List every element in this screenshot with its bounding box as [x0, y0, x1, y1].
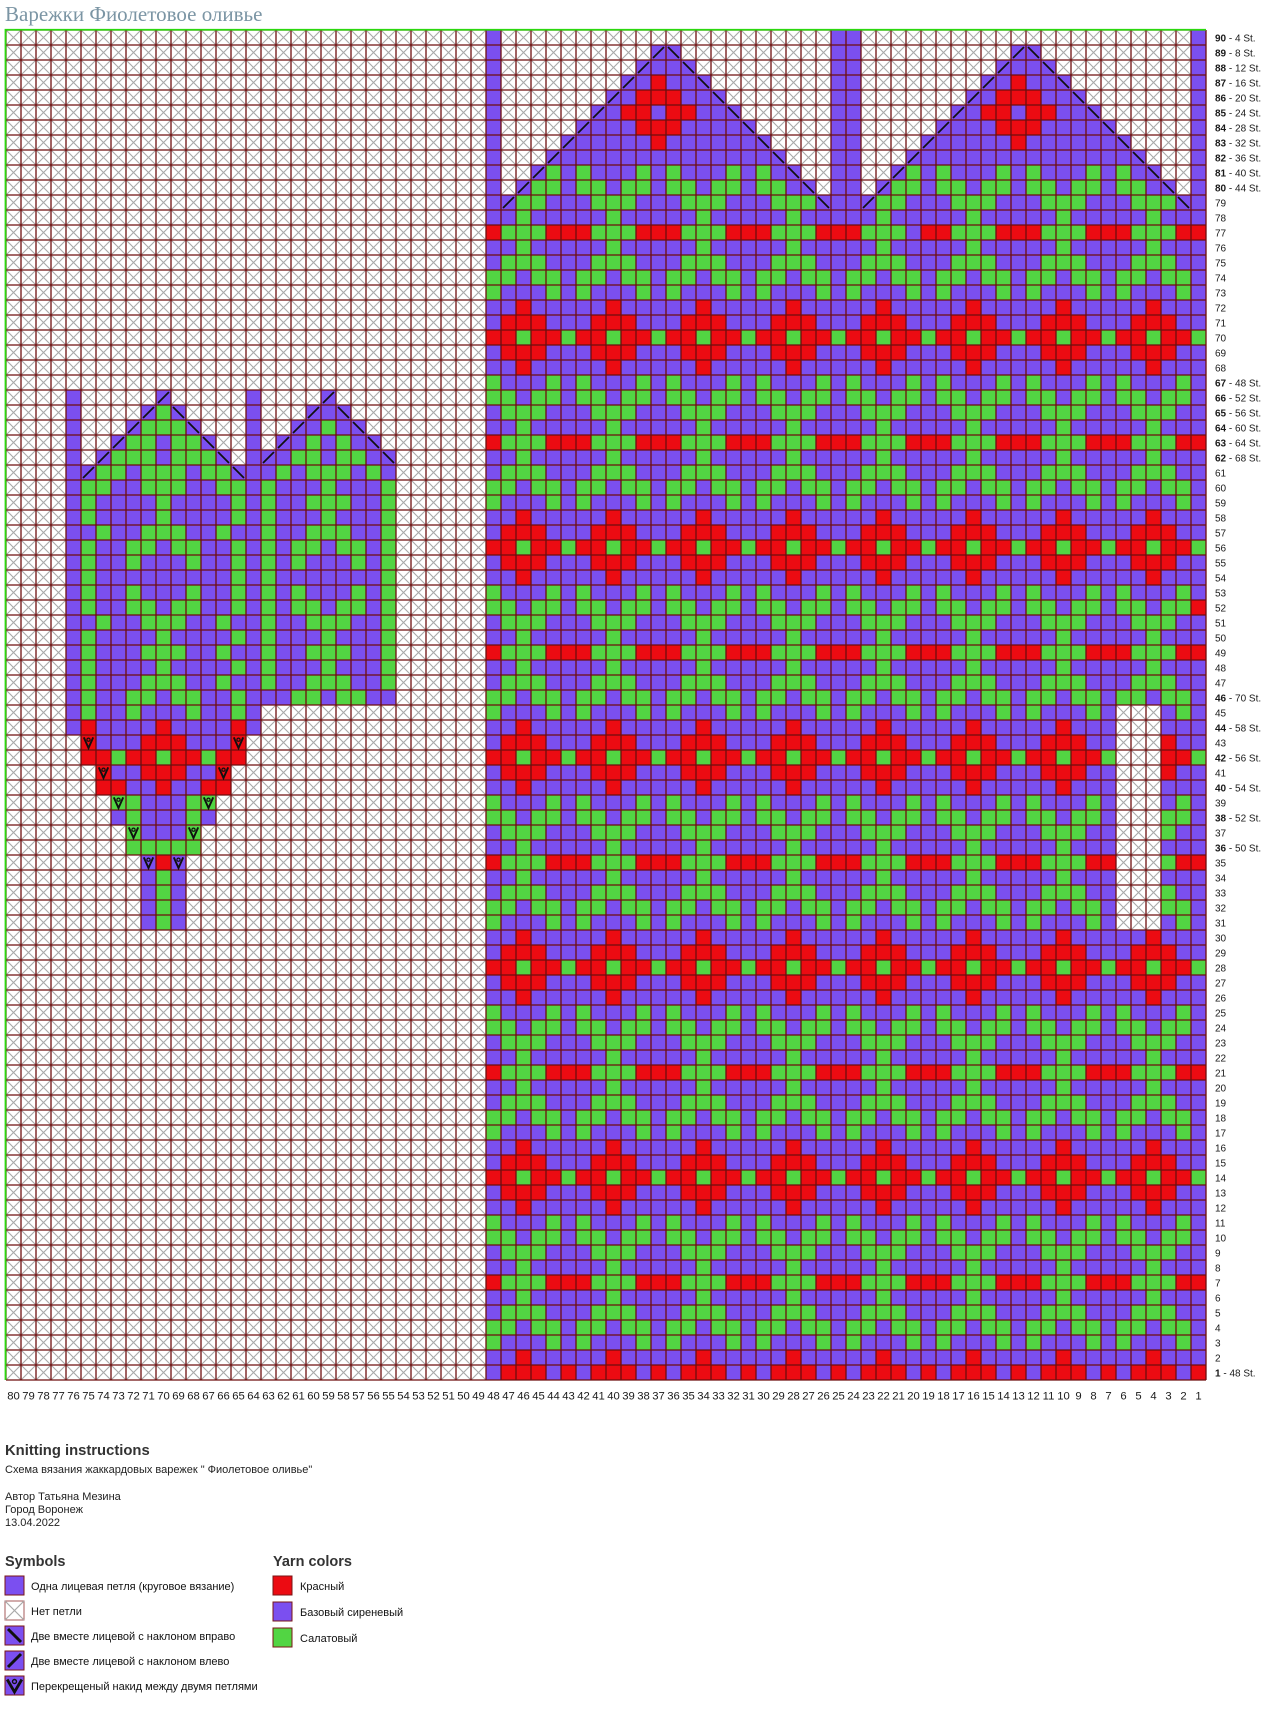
- svg-text:82 - 36 St.: 82 - 36 St.: [1215, 154, 1261, 165]
- svg-text:31: 31: [1215, 919, 1227, 930]
- svg-text:16: 16: [967, 1391, 980, 1403]
- svg-text:34: 34: [1215, 874, 1227, 885]
- svg-text:71: 71: [142, 1391, 155, 1403]
- svg-text:86 - 20 St.: 86 - 20 St.: [1215, 94, 1261, 105]
- svg-text:Базовый сиреневый: Базовый сиреневый: [300, 1607, 403, 1619]
- svg-text:70: 70: [1215, 334, 1227, 345]
- svg-text:53: 53: [412, 1391, 425, 1403]
- svg-text:1 - 48 St.: 1 - 48 St.: [1215, 1369, 1256, 1380]
- svg-text:56: 56: [367, 1391, 380, 1403]
- svg-text:19: 19: [1215, 1099, 1227, 1110]
- svg-text:14: 14: [1215, 1174, 1227, 1185]
- svg-text:Knitting instructions: Knitting instructions: [5, 1443, 150, 1459]
- svg-text:5: 5: [1215, 1309, 1221, 1320]
- svg-text:48: 48: [1215, 664, 1227, 675]
- svg-text:68: 68: [187, 1391, 200, 1403]
- svg-text:13: 13: [1012, 1391, 1025, 1403]
- svg-text:68: 68: [1215, 364, 1227, 375]
- svg-text:64 - 60 St.: 64 - 60 St.: [1215, 424, 1261, 435]
- svg-text:1: 1: [1195, 1391, 1201, 1403]
- svg-text:63: 63: [262, 1391, 275, 1403]
- svg-text:41: 41: [1215, 769, 1227, 780]
- svg-text:29: 29: [772, 1391, 785, 1403]
- svg-text:85 - 24 St.: 85 - 24 St.: [1215, 109, 1261, 120]
- svg-text:46 - 70 St.: 46 - 70 St.: [1215, 694, 1261, 705]
- svg-text:53: 53: [1215, 589, 1227, 600]
- svg-text:Нет петли: Нет петли: [31, 1606, 82, 1618]
- svg-text:42 - 56 St.: 42 - 56 St.: [1215, 754, 1261, 765]
- svg-text:Одна лицевая петля (круговое в: Одна лицевая петля (круговое вязание): [31, 1581, 234, 1593]
- svg-text:30: 30: [1215, 934, 1227, 945]
- svg-text:29: 29: [1215, 949, 1227, 960]
- svg-text:78: 78: [1215, 214, 1227, 225]
- svg-text:31: 31: [742, 1391, 755, 1403]
- svg-text:38: 38: [637, 1391, 650, 1403]
- svg-text:84 - 28 St.: 84 - 28 St.: [1215, 124, 1261, 135]
- svg-text:Автор Татьяна Мезина: Автор Татьяна Мезина: [5, 1491, 122, 1503]
- svg-text:60: 60: [307, 1391, 320, 1403]
- svg-text:32: 32: [727, 1391, 740, 1403]
- svg-text:Варежки Фиолетовое оливье: Варежки Фиолетовое оливье: [5, 2, 262, 26]
- svg-text:4: 4: [1150, 1391, 1156, 1403]
- svg-text:26: 26: [1215, 994, 1227, 1005]
- svg-text:75: 75: [82, 1391, 95, 1403]
- svg-text:11: 11: [1043, 1391, 1055, 1403]
- svg-text:23: 23: [862, 1391, 875, 1403]
- svg-text:44: 44: [547, 1391, 560, 1403]
- svg-text:76: 76: [67, 1391, 80, 1403]
- svg-text:41: 41: [592, 1391, 605, 1403]
- svg-text:42: 42: [577, 1391, 590, 1403]
- svg-text:27: 27: [802, 1391, 815, 1403]
- svg-text:73: 73: [112, 1391, 125, 1403]
- svg-text:51: 51: [442, 1391, 455, 1403]
- svg-text:28: 28: [787, 1391, 800, 1403]
- svg-text:5: 5: [1135, 1391, 1141, 1403]
- svg-text:33: 33: [712, 1391, 725, 1403]
- svg-text:10: 10: [1057, 1391, 1070, 1403]
- svg-text:72: 72: [127, 1391, 140, 1403]
- svg-text:40 - 54 St.: 40 - 54 St.: [1215, 784, 1261, 795]
- svg-text:Салатовый: Салатовый: [300, 1633, 357, 1645]
- svg-text:38 - 52 St.: 38 - 52 St.: [1215, 814, 1261, 825]
- svg-text:39: 39: [1215, 799, 1227, 810]
- svg-text:17: 17: [952, 1391, 965, 1403]
- svg-text:16: 16: [1215, 1144, 1227, 1155]
- svg-text:34: 34: [697, 1391, 710, 1403]
- svg-text:64: 64: [247, 1391, 260, 1403]
- svg-text:47: 47: [1215, 679, 1227, 690]
- svg-text:6: 6: [1215, 1294, 1221, 1305]
- svg-text:30: 30: [757, 1391, 770, 1403]
- svg-text:72: 72: [1215, 304, 1227, 315]
- svg-text:58: 58: [337, 1391, 350, 1403]
- svg-text:7: 7: [1105, 1391, 1111, 1403]
- svg-text:70: 70: [157, 1391, 170, 1403]
- svg-text:62: 62: [277, 1391, 290, 1403]
- svg-text:37: 37: [652, 1391, 665, 1403]
- svg-text:44 - 58 St.: 44 - 58 St.: [1215, 724, 1261, 735]
- svg-text:47: 47: [502, 1391, 515, 1403]
- svg-text:52: 52: [427, 1391, 440, 1403]
- svg-text:19: 19: [922, 1391, 935, 1403]
- svg-text:15: 15: [982, 1391, 995, 1403]
- svg-text:87 - 16 St.: 87 - 16 St.: [1215, 79, 1261, 90]
- svg-text:25: 25: [1215, 1009, 1227, 1020]
- svg-text:14: 14: [997, 1391, 1010, 1403]
- svg-text:18: 18: [937, 1391, 950, 1403]
- svg-text:12: 12: [1027, 1391, 1040, 1403]
- svg-text:69: 69: [172, 1391, 185, 1403]
- svg-text:23: 23: [1215, 1039, 1227, 1050]
- svg-text:54: 54: [1215, 574, 1227, 585]
- svg-text:21: 21: [892, 1391, 905, 1403]
- svg-text:74: 74: [1215, 274, 1227, 285]
- svg-text:63 - 64 St.: 63 - 64 St.: [1215, 439, 1261, 450]
- svg-text:49: 49: [472, 1391, 485, 1403]
- svg-text:10: 10: [1215, 1234, 1227, 1245]
- svg-text:75: 75: [1215, 259, 1227, 270]
- svg-text:78: 78: [37, 1391, 50, 1403]
- svg-text:79: 79: [22, 1391, 35, 1403]
- svg-text:59: 59: [322, 1391, 335, 1403]
- svg-text:21: 21: [1215, 1069, 1227, 1080]
- svg-text:27: 27: [1215, 979, 1227, 990]
- svg-text:50: 50: [457, 1391, 470, 1403]
- svg-text:57: 57: [1215, 529, 1227, 540]
- svg-text:15: 15: [1215, 1159, 1227, 1170]
- svg-text:39: 39: [622, 1391, 635, 1403]
- svg-text:59: 59: [1215, 499, 1227, 510]
- svg-text:79: 79: [1215, 199, 1227, 210]
- svg-text:2: 2: [1180, 1391, 1186, 1403]
- svg-text:77: 77: [1215, 229, 1227, 240]
- svg-text:65: 65: [232, 1391, 245, 1403]
- svg-text:62 - 68 St.: 62 - 68 St.: [1215, 454, 1261, 465]
- svg-text:51: 51: [1215, 619, 1227, 630]
- svg-text:81 - 40 St.: 81 - 40 St.: [1215, 169, 1261, 180]
- svg-text:74: 74: [97, 1391, 110, 1403]
- svg-text:90 - 4 St.: 90 - 4 St.: [1215, 34, 1256, 45]
- svg-text:66 - 52 St.: 66 - 52 St.: [1215, 394, 1261, 405]
- svg-text:55: 55: [1215, 559, 1227, 570]
- svg-text:49: 49: [1215, 649, 1227, 660]
- svg-text:36 - 50 St.: 36 - 50 St.: [1215, 844, 1261, 855]
- svg-text:6: 6: [1120, 1391, 1126, 1403]
- svg-text:20: 20: [1215, 1084, 1227, 1095]
- svg-text:45: 45: [1215, 709, 1227, 720]
- svg-text:48: 48: [487, 1391, 500, 1403]
- svg-text:18: 18: [1215, 1114, 1227, 1125]
- svg-text:60: 60: [1215, 484, 1227, 495]
- svg-text:71: 71: [1215, 319, 1227, 330]
- svg-text:43: 43: [1215, 739, 1227, 750]
- svg-text:80 - 44 St.: 80 - 44 St.: [1215, 184, 1261, 195]
- svg-text:2: 2: [1215, 1354, 1221, 1365]
- svg-text:56: 56: [1215, 544, 1227, 555]
- svg-text:35: 35: [682, 1391, 695, 1403]
- svg-text:69: 69: [1215, 349, 1227, 360]
- svg-text:3: 3: [1165, 1391, 1171, 1403]
- svg-text:55: 55: [382, 1391, 395, 1403]
- svg-text:11: 11: [1215, 1219, 1226, 1230]
- svg-text:Схема вязания жаккардовых варе: Схема вязания жаккардовых варежек " Фиол…: [5, 1464, 312, 1476]
- svg-text:57: 57: [352, 1391, 365, 1403]
- svg-text:13.04.2022: 13.04.2022: [5, 1517, 60, 1529]
- svg-text:3: 3: [1215, 1339, 1221, 1350]
- svg-text:76: 76: [1215, 244, 1227, 255]
- svg-text:7: 7: [1215, 1279, 1221, 1290]
- svg-text:Красный: Красный: [300, 1581, 344, 1593]
- svg-text:Symbols: Symbols: [5, 1554, 65, 1570]
- svg-text:Город Воронеж: Город Воронеж: [5, 1504, 84, 1516]
- svg-text:8: 8: [1215, 1264, 1221, 1275]
- svg-text:33: 33: [1215, 889, 1227, 900]
- svg-text:65 - 56 St.: 65 - 56 St.: [1215, 409, 1261, 420]
- svg-text:9: 9: [1075, 1391, 1081, 1403]
- svg-text:67: 67: [202, 1391, 215, 1403]
- svg-text:Две вместе лицевой с наклоном: Две вместе лицевой с наклоном влево: [31, 1656, 229, 1668]
- svg-text:73: 73: [1215, 289, 1227, 300]
- svg-text:45: 45: [532, 1391, 545, 1403]
- svg-text:Перекрещеный накид между двумя: Перекрещеный накид между двумя петлями: [31, 1681, 258, 1693]
- svg-text:77: 77: [52, 1391, 65, 1403]
- svg-text:43: 43: [562, 1391, 575, 1403]
- svg-text:4: 4: [1215, 1324, 1221, 1335]
- svg-text:Две вместе лицевой с наклоном: Две вместе лицевой с наклоном вправо: [31, 1631, 235, 1643]
- svg-text:58: 58: [1215, 514, 1227, 525]
- svg-text:Yarn colors: Yarn colors: [273, 1554, 352, 1570]
- svg-text:36: 36: [667, 1391, 680, 1403]
- svg-text:67 - 48 St.: 67 - 48 St.: [1215, 379, 1261, 390]
- svg-text:50: 50: [1215, 634, 1227, 645]
- svg-text:28: 28: [1215, 964, 1227, 975]
- svg-text:54: 54: [397, 1391, 410, 1403]
- svg-text:20: 20: [907, 1391, 920, 1403]
- svg-text:46: 46: [517, 1391, 530, 1403]
- svg-text:52: 52: [1215, 604, 1227, 615]
- svg-text:26: 26: [817, 1391, 830, 1403]
- svg-text:17: 17: [1215, 1129, 1227, 1140]
- svg-text:24: 24: [1215, 1024, 1227, 1035]
- svg-text:89 - 8 St.: 89 - 8 St.: [1215, 49, 1256, 60]
- svg-text:61: 61: [1215, 469, 1227, 480]
- svg-text:66: 66: [217, 1391, 230, 1403]
- svg-text:83 - 32 St.: 83 - 32 St.: [1215, 139, 1261, 150]
- svg-text:22: 22: [1215, 1054, 1227, 1065]
- svg-text:32: 32: [1215, 904, 1227, 915]
- svg-text:80: 80: [7, 1391, 20, 1403]
- svg-text:25: 25: [832, 1391, 845, 1403]
- svg-text:24: 24: [847, 1391, 860, 1403]
- svg-text:9: 9: [1215, 1249, 1221, 1260]
- svg-text:37: 37: [1215, 829, 1227, 840]
- svg-text:12: 12: [1215, 1204, 1227, 1215]
- svg-text:8: 8: [1090, 1391, 1096, 1403]
- svg-text:40: 40: [607, 1391, 620, 1403]
- svg-text:13: 13: [1215, 1189, 1227, 1200]
- svg-text:61: 61: [292, 1391, 305, 1403]
- svg-text:22: 22: [877, 1391, 890, 1403]
- svg-text:88 - 12 St.: 88 - 12 St.: [1215, 64, 1261, 75]
- svg-text:35: 35: [1215, 859, 1227, 870]
